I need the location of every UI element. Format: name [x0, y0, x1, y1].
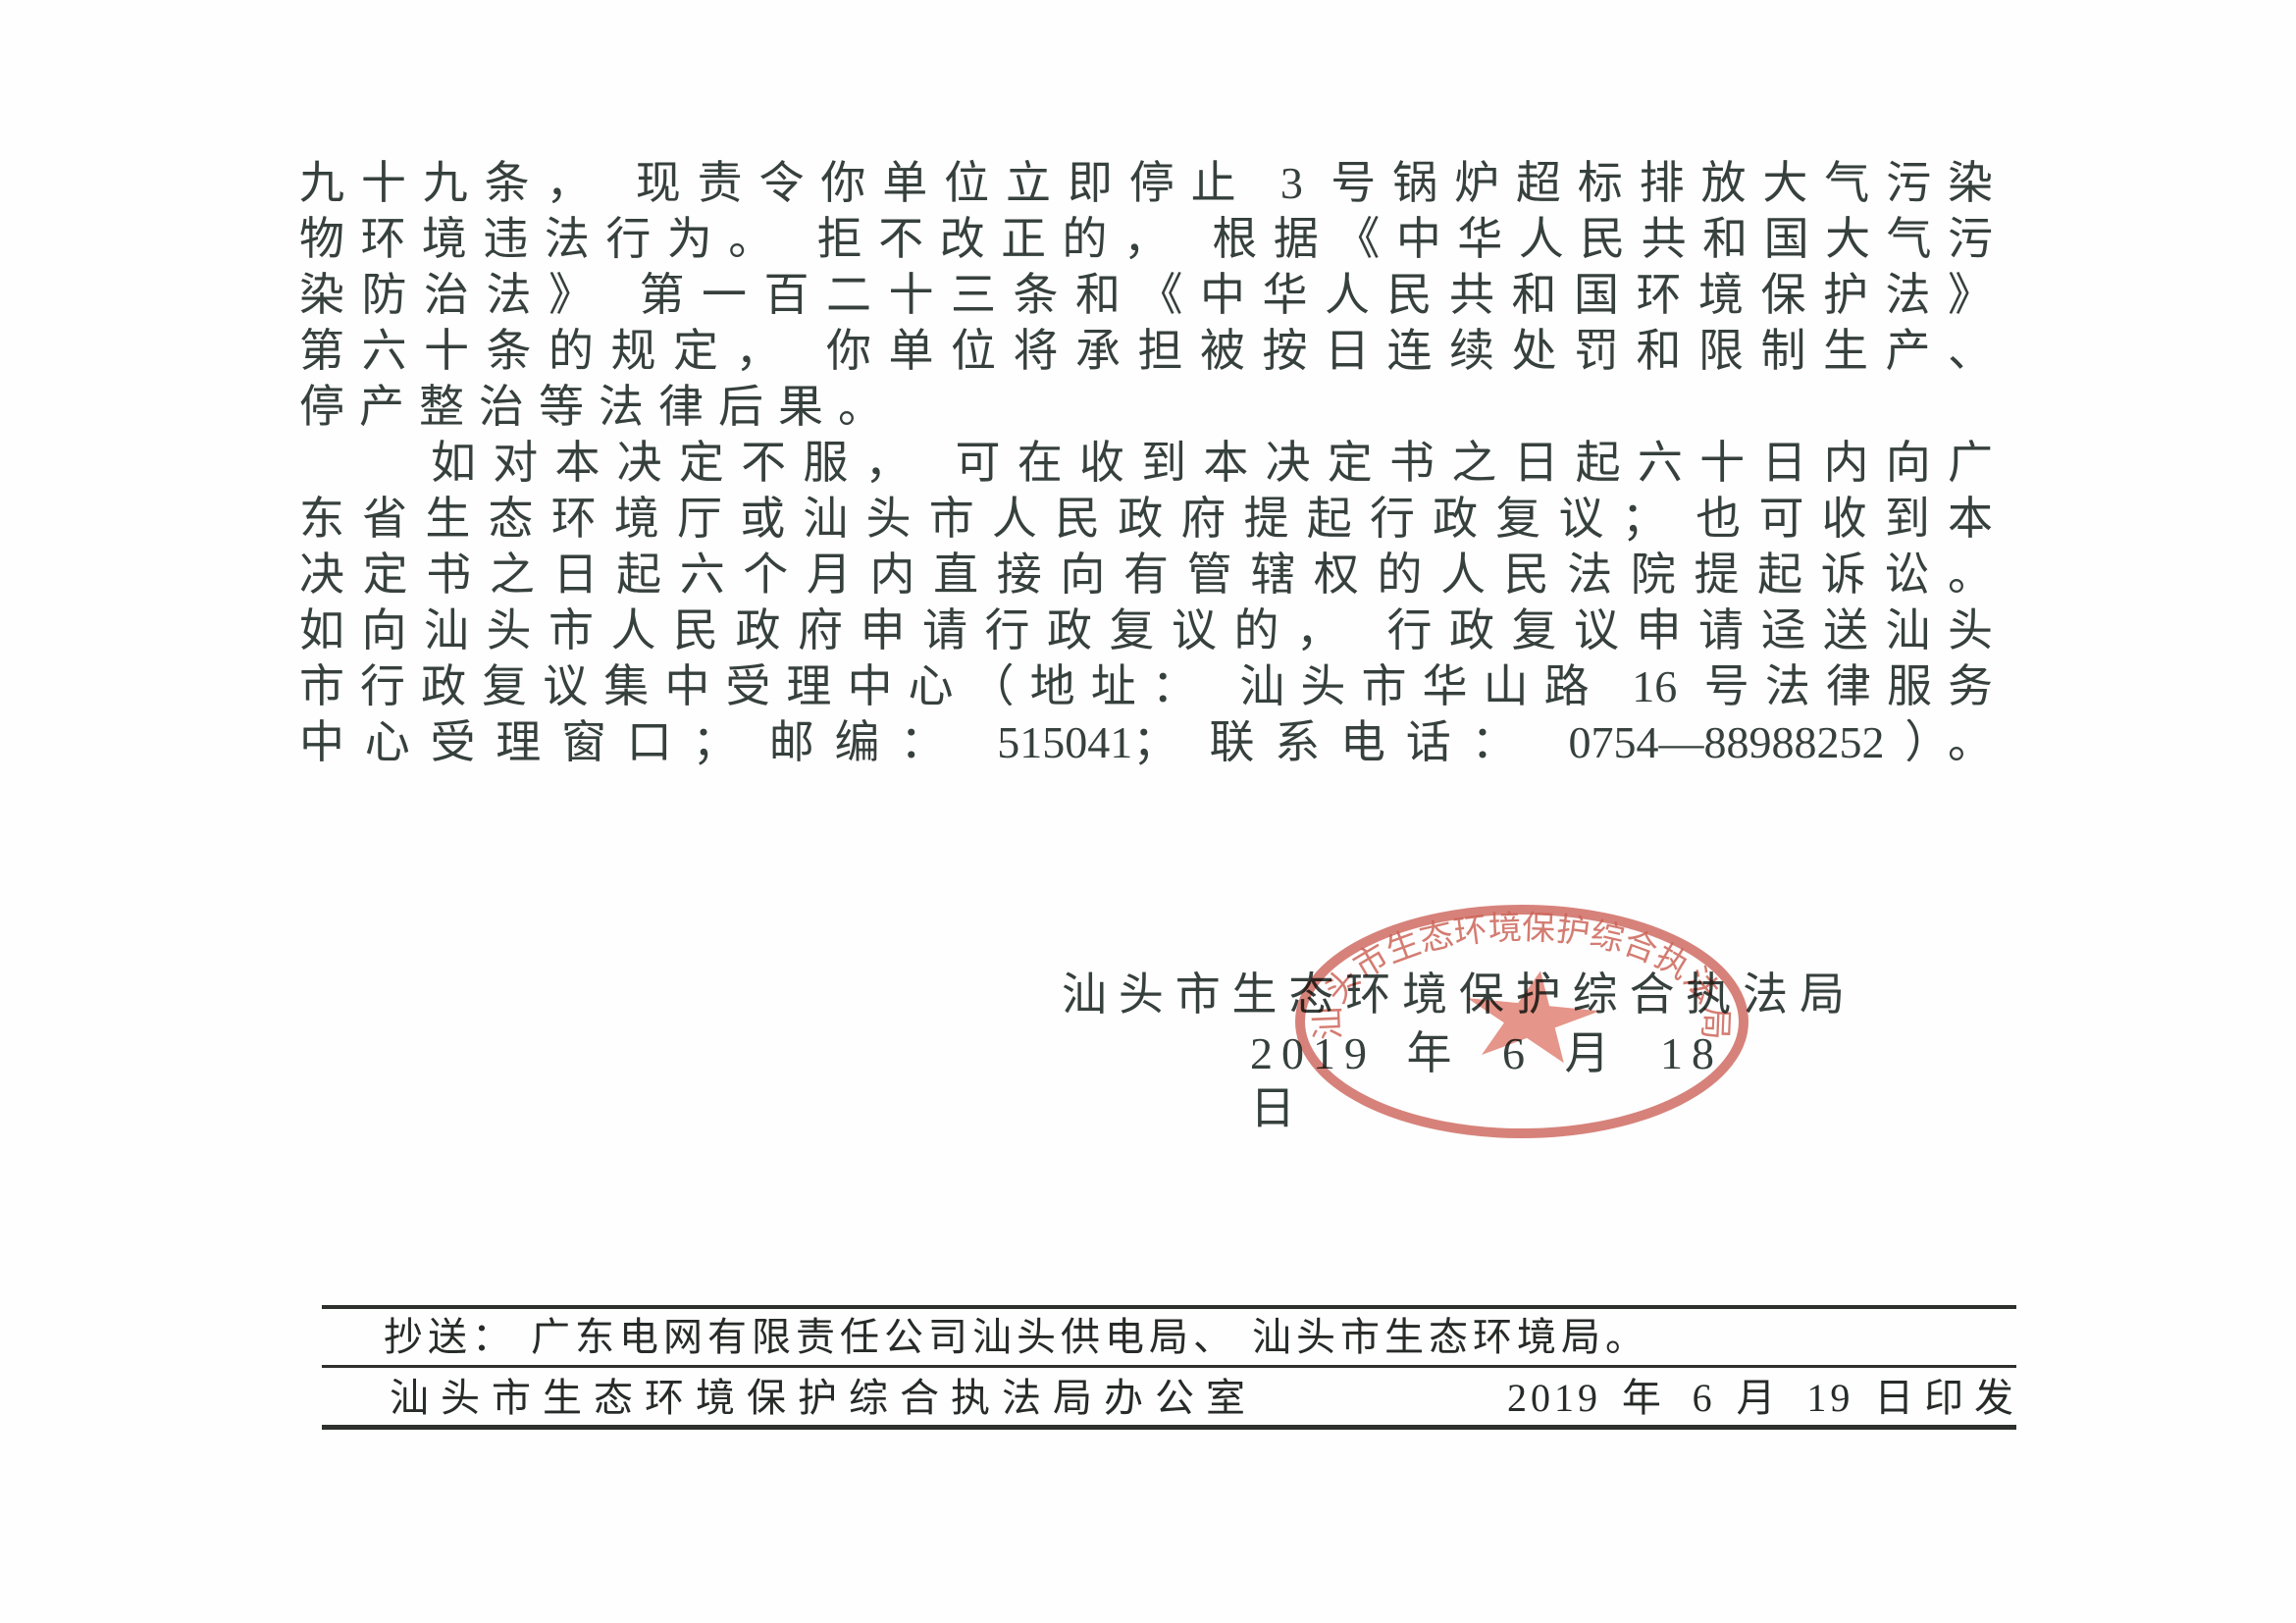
body-line: 如向汕头市人民政府申请行政复议的， 行政复议申请迳送汕头	[299, 602, 1993, 658]
body-line: 停产整治等法律后果。	[299, 379, 1993, 435]
body-line: 东省生态环境厅或汕头市人民政府提起行政复议； 也可收到本	[299, 491, 1993, 547]
footer-top-rule	[322, 1305, 2016, 1309]
scanned-document-page: 九十九条， 现责令你单位立即停止 3 号锅炉超标排放大气污染物环境违法行为。 拒…	[0, 0, 2296, 1623]
body-line: 市行政复议集中受理中心（地址： 汕头市华山路 16 号法律服务	[299, 658, 1993, 714]
footer-issuing-office: 汕头市生态环境保护综合执法局办公室	[390, 1376, 1257, 1421]
document-body: 九十九条， 现责令你单位立即停止 3 号锅炉超标排放大气污染物环境违法行为。 拒…	[299, 155, 1993, 770]
body-line: 九十九条， 现责令你单位立即停止 3 号锅炉超标排放大气污染	[299, 155, 1993, 211]
body-line: 中心受理窗口； 邮编： 515041； 联系电话： 0754—88988252）…	[299, 714, 1993, 770]
footer-bottom-rule	[322, 1425, 2016, 1430]
body-line: 决定书之日起六个月内直接向有管辖权的人民法院提起诉讼。	[299, 547, 1993, 602]
body-line: 如对本决定不服， 可在收到本决定书之日起六十日内向广	[299, 435, 1993, 491]
body-line: 第六十条的规定， 你单位将承担被按日连续处罚和限制生产、	[299, 323, 1993, 379]
body-line: 物环境违法行为。 拒不改正的， 根据《中华人民共和国大气污	[299, 211, 1993, 267]
body-line: 染防治法》 第一百二十三条和《中华人民共和国环境保护法》	[299, 267, 1993, 323]
footer-cc-line: 抄送： 广东电网有限责任公司汕头供电局、 汕头市生态环境局。	[384, 1315, 1649, 1360]
footer-print-date: 2019 年 6 月 19 日印发	[1507, 1376, 2017, 1421]
signature-date: 2019 年 6 月 18 日	[1250, 1026, 1723, 1081]
footer-middle-rule	[322, 1365, 2016, 1368]
signature-agency: 汕头市生态环境保护综合执法局	[1062, 968, 1845, 1022]
body-lines: 九十九条， 现责令你单位立即停止 3 号锅炉超标排放大气污染物环境违法行为。 拒…	[299, 155, 1993, 770]
